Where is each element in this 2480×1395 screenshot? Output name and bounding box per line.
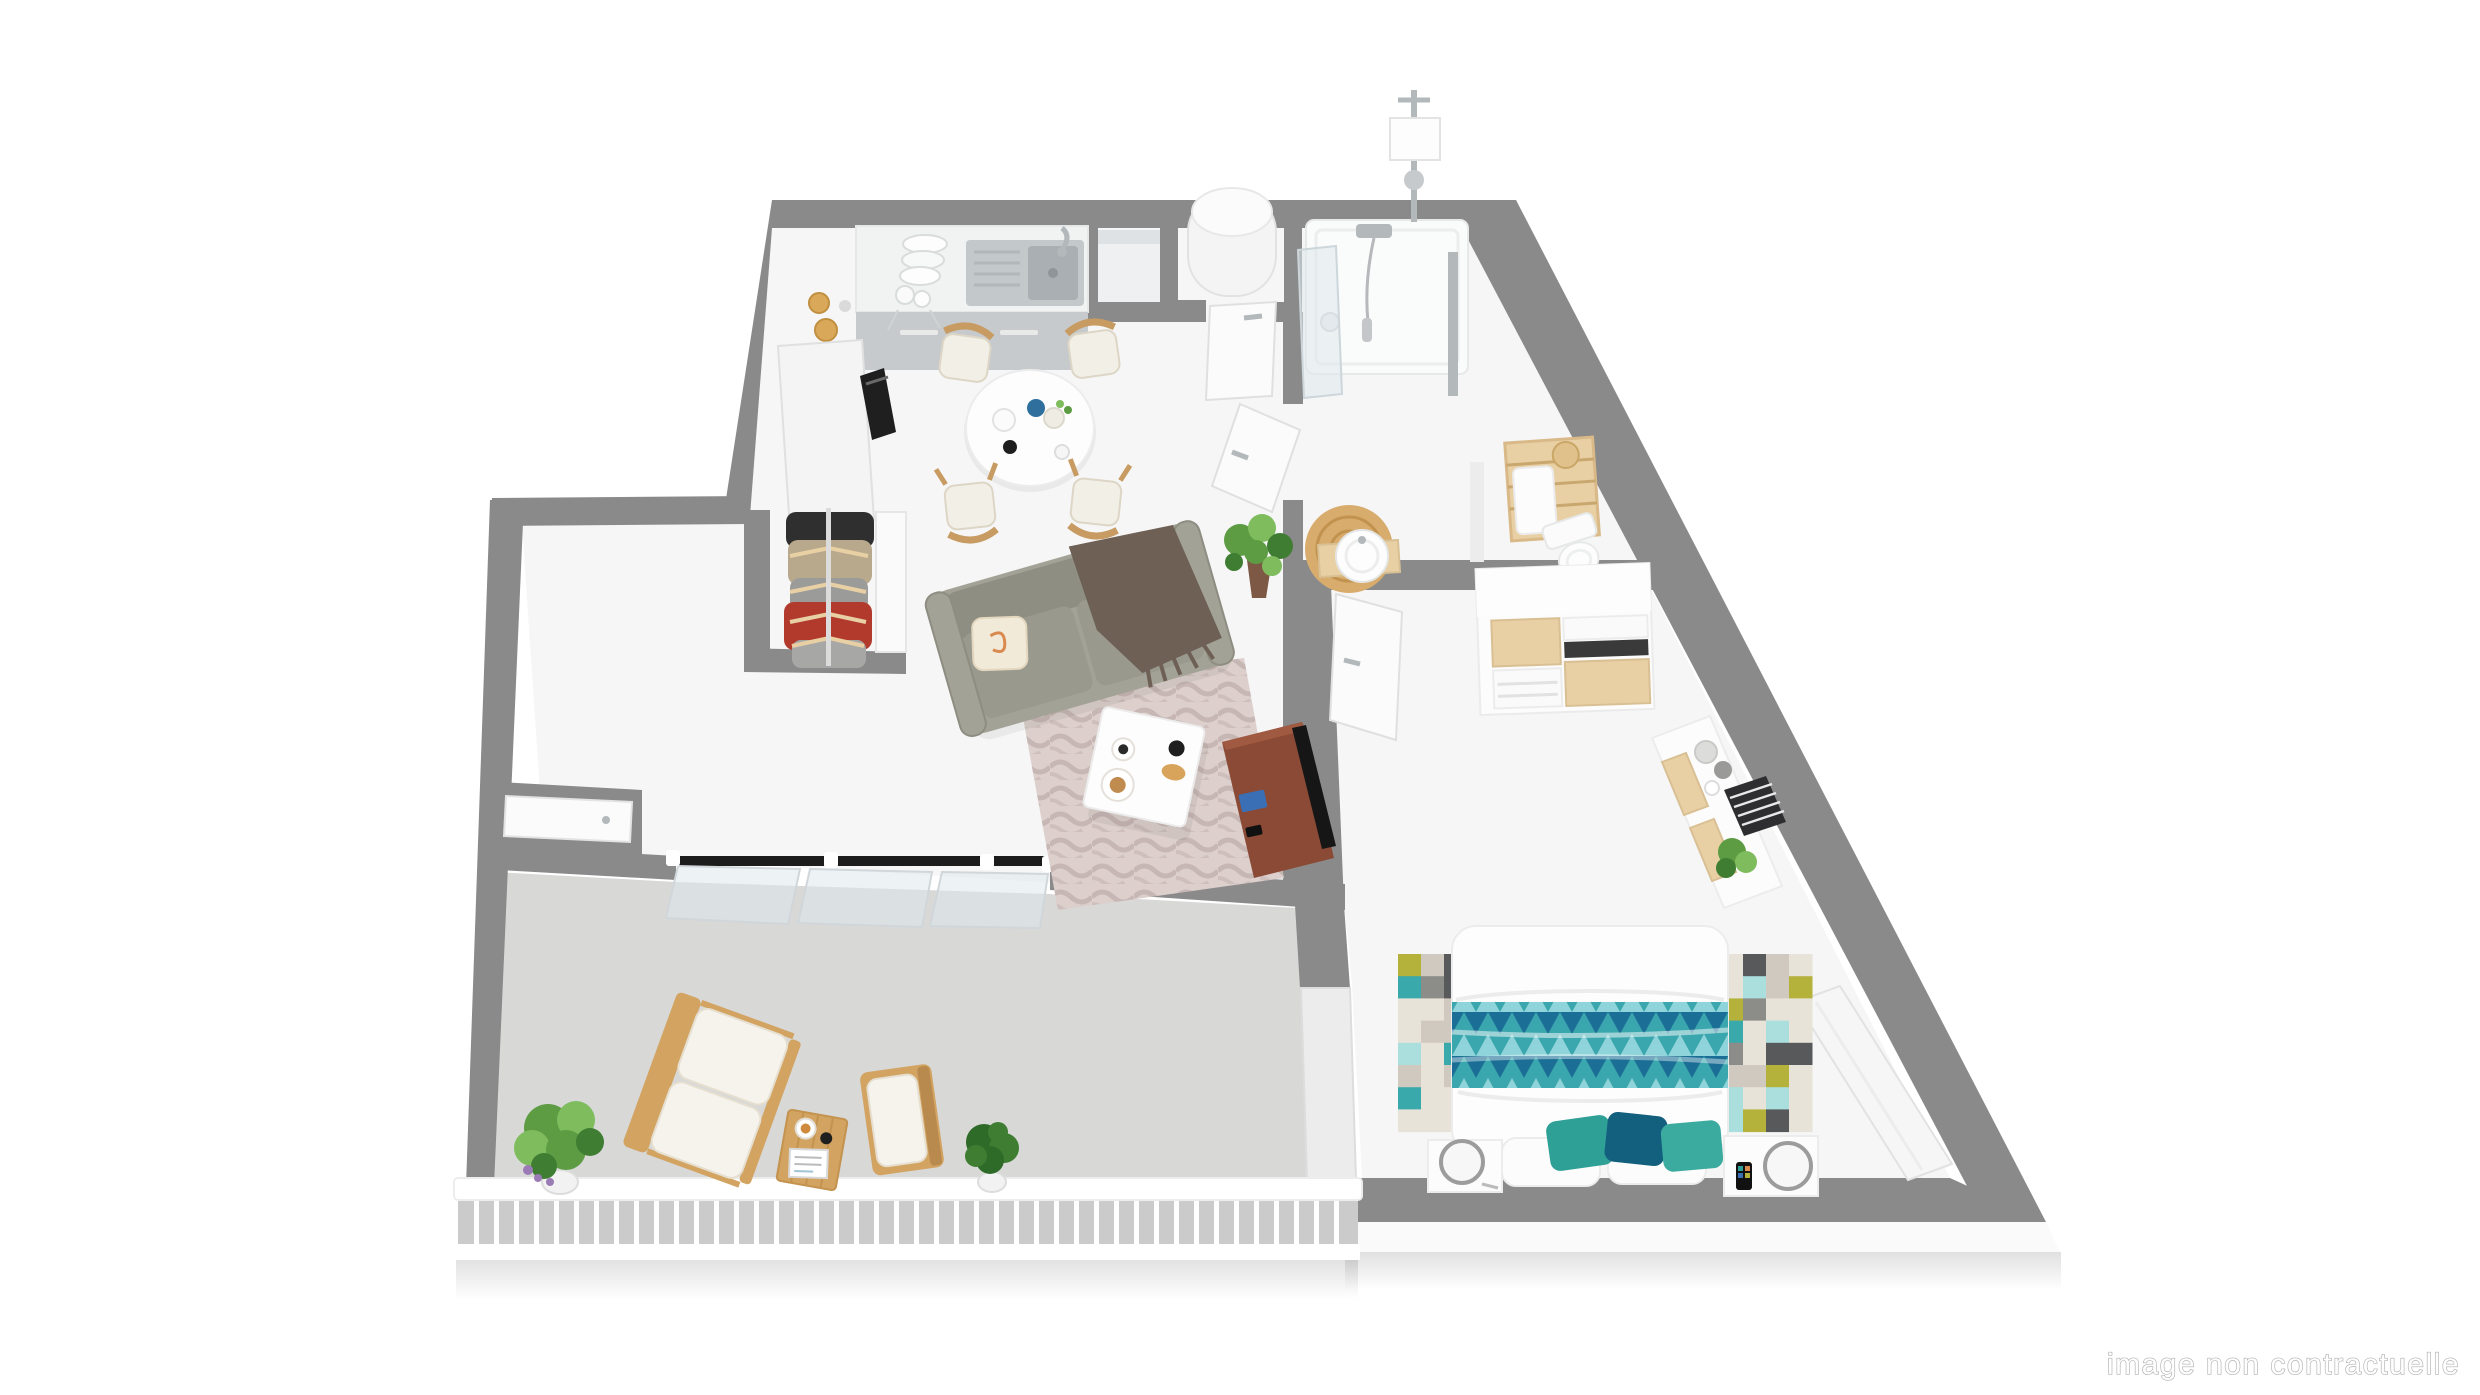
- bedroom-balcony-window: [1301, 988, 1356, 1180]
- door-handle: [1244, 316, 1262, 318]
- railing-top-rail: [454, 1178, 1362, 1200]
- dresser-slot: [1564, 639, 1649, 658]
- shower: [1298, 220, 1468, 398]
- shower-head-icon: [1404, 170, 1424, 190]
- shower-handset: [1362, 318, 1372, 342]
- glass-panel: [930, 872, 1048, 928]
- nightstand-left: [1428, 1140, 1502, 1192]
- roller-cap: [666, 850, 680, 866]
- balcony-side-table: [776, 1109, 848, 1190]
- dark-teal-cushion: [1604, 1111, 1669, 1167]
- sofa-pillow: [972, 617, 1028, 671]
- bay-rail: [672, 856, 1052, 866]
- glass-panel: [798, 869, 932, 927]
- smartphone: [1736, 1162, 1752, 1190]
- railing-bottom-rail: [456, 1244, 1360, 1260]
- closet: [784, 508, 906, 668]
- bedroom-door-open: [1330, 594, 1402, 740]
- watermark: image non contractuelle: [2107, 1348, 2460, 1381]
- entry-door: [504, 796, 632, 842]
- vase-icon: [1714, 761, 1732, 779]
- bathroom-door: [1206, 302, 1276, 400]
- teal-cushion: [1545, 1114, 1615, 1172]
- seat-cushion: [866, 1073, 928, 1167]
- white-vase-icon: [1044, 408, 1064, 428]
- closet-top-wall: [490, 496, 750, 526]
- shower-glass-door: [1298, 246, 1342, 398]
- wardrobe-side-panel: [876, 512, 906, 652]
- shower-head-plate: [1390, 118, 1440, 160]
- bedroom-shadow: [1345, 1252, 2061, 1290]
- roller-cap: [824, 852, 838, 868]
- basket-icon: [1552, 441, 1580, 469]
- cabinet-handle: [1000, 330, 1038, 335]
- coffee-table: [1080, 706, 1212, 842]
- balcony-railing: [454, 1178, 1362, 1260]
- cabinet-handle: [900, 330, 938, 335]
- entry-door-handle: [602, 816, 610, 824]
- sliding-bay-window: [666, 850, 1054, 928]
- tall-cabinet: [778, 340, 874, 530]
- closet-left-wall: [744, 510, 770, 670]
- dresser-wood-door: [1491, 618, 1561, 666]
- roller-cap: [980, 854, 994, 870]
- vase-icon: [1705, 781, 1719, 795]
- triangle-blanket: [1452, 1002, 1728, 1088]
- magazine: [789, 1149, 828, 1178]
- wc-divider: [1470, 462, 1484, 562]
- railing-backdrop: [458, 1198, 1358, 1246]
- blue-vase-icon: [1027, 399, 1045, 417]
- shower-mixer: [1356, 224, 1392, 238]
- round-lamp: [1441, 1141, 1483, 1183]
- closet-rail: [826, 508, 831, 666]
- glass-frame-bar: [1448, 252, 1458, 396]
- bathroom-left-wall-upper: [1283, 312, 1303, 404]
- teal-cushion: [1660, 1119, 1724, 1172]
- pitcher-icon: [993, 409, 1015, 431]
- bedroom-slab: [1345, 1222, 2060, 1252]
- nightstand-right: [1724, 1136, 1818, 1196]
- cup-icon: [1055, 445, 1069, 459]
- cup-icon: [1003, 440, 1017, 454]
- bedroom-balcony-divider: [1295, 905, 1350, 988]
- balcony-shadow: [456, 1258, 1358, 1300]
- floorplan-3d-render: image non contractuelle: [0, 0, 2480, 1395]
- floorplan-svg: image non contractuelle: [0, 0, 2480, 1395]
- dresser: [1475, 563, 1654, 715]
- divider-alcove-heater: [1160, 228, 1178, 302]
- glass-panel: [666, 866, 800, 924]
- balcony-armchair: [859, 1063, 945, 1176]
- water-heater: [1188, 188, 1276, 296]
- round-lamp: [1765, 1143, 1811, 1189]
- dresser-wood-drawer: [1565, 659, 1650, 706]
- vase-icon: [1695, 741, 1717, 763]
